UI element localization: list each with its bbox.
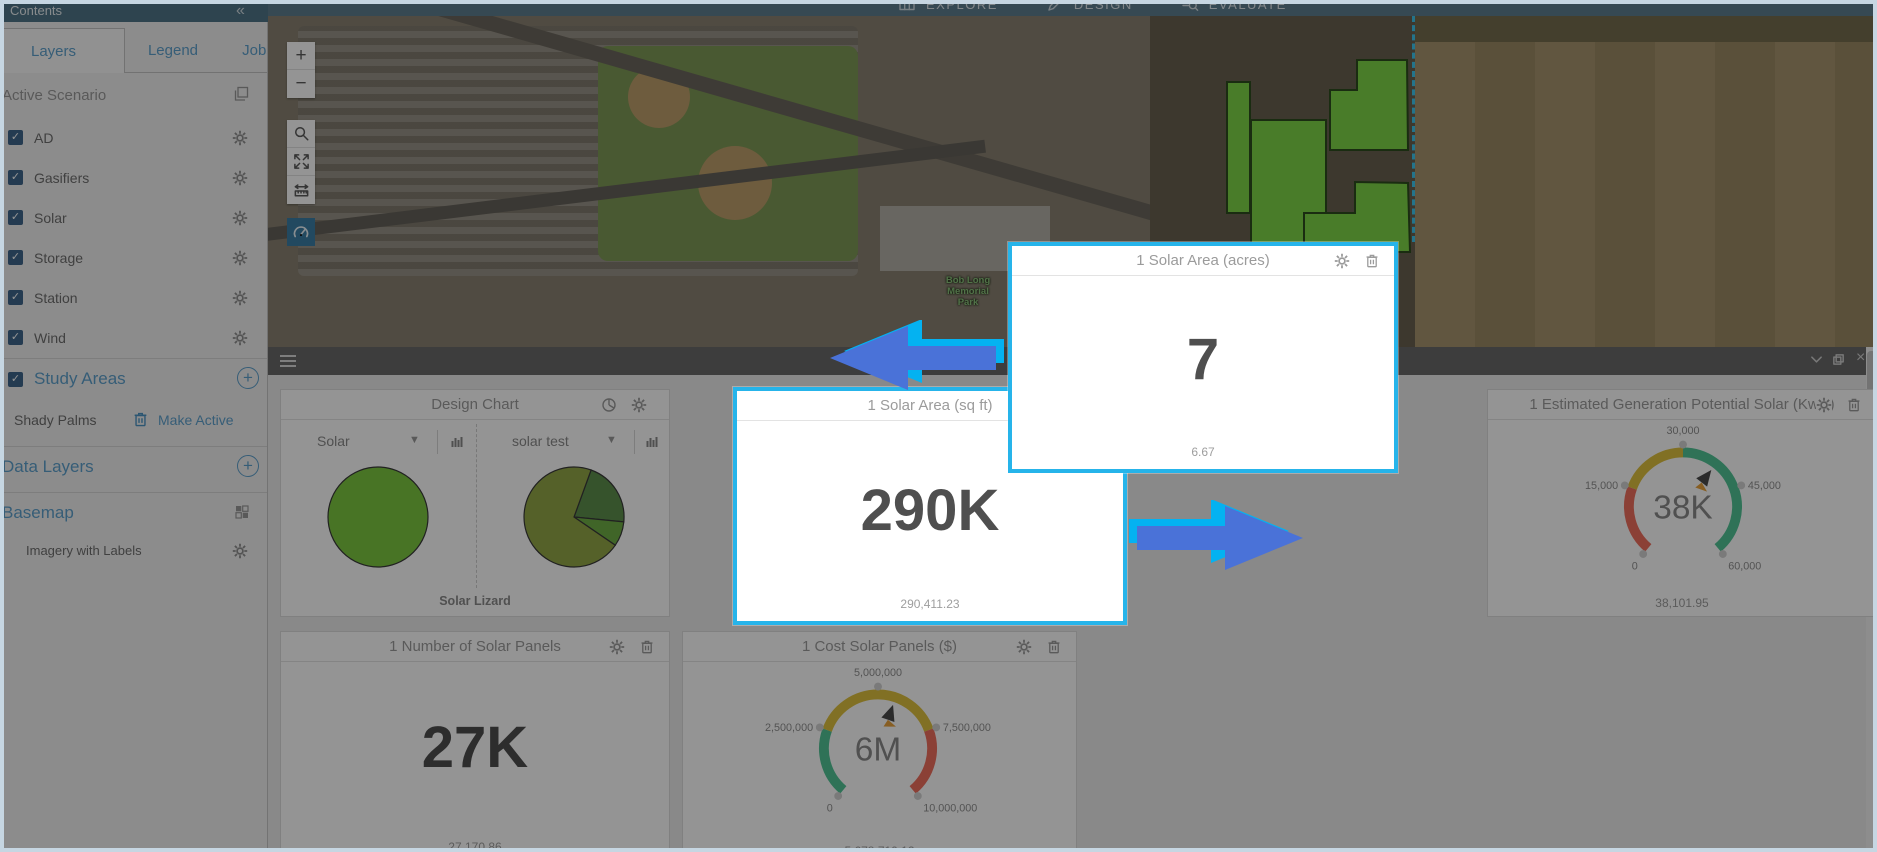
card-trash-icon[interactable] <box>1364 253 1380 269</box>
card-solar-area-acres: 1 Solar Area (acres) 7 6.67 <box>1008 242 1398 473</box>
metric-exact-value: 6.67 <box>1012 445 1394 459</box>
metric-value: 290K <box>737 477 1123 544</box>
card-header: 1 Solar Area (acres) <box>1012 246 1394 276</box>
annotation-arrow-left <box>824 320 1004 396</box>
geoplanner-app: EXPLORE DESIGN EVALUATE Contents « Layer… <box>0 0 1877 852</box>
metric-exact-value: 290,411.23 <box>737 597 1123 611</box>
metric-value: 7 <box>1012 326 1394 393</box>
card-gear-icon[interactable] <box>1334 253 1350 269</box>
annotation-arrow-right <box>1129 500 1309 576</box>
